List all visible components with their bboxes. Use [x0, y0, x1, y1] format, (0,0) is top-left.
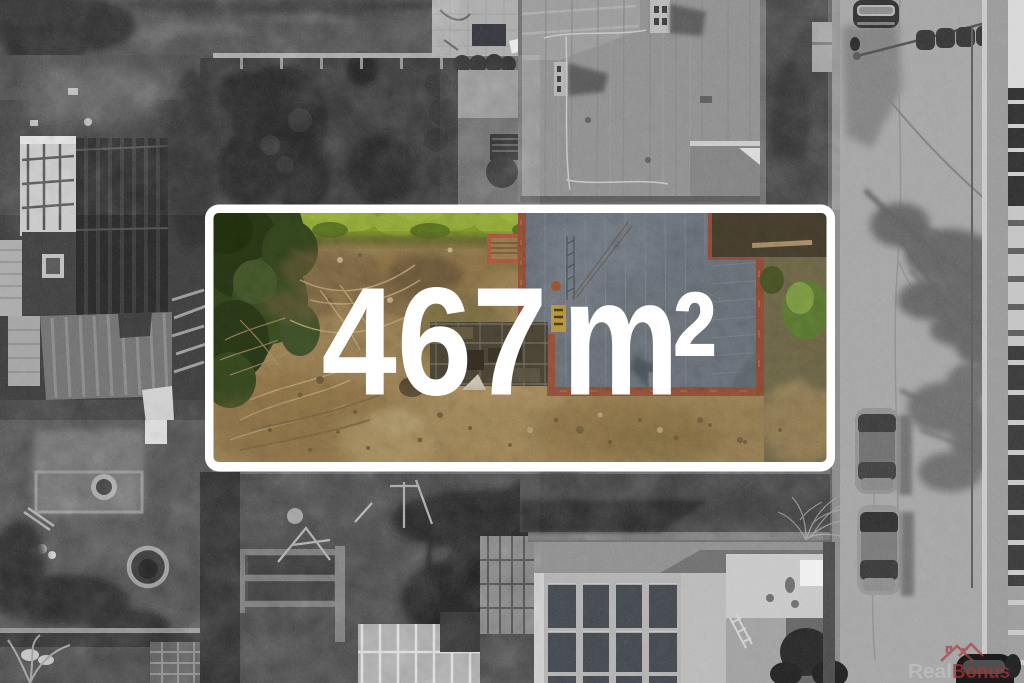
svg-text:Bonus: Bonus [952, 661, 1010, 683]
svg-text:467: 467 [322, 256, 548, 428]
svg-text:²: ² [672, 255, 717, 456]
svg-text:Real: Real [908, 661, 952, 683]
svg-text:m: m [562, 246, 679, 431]
